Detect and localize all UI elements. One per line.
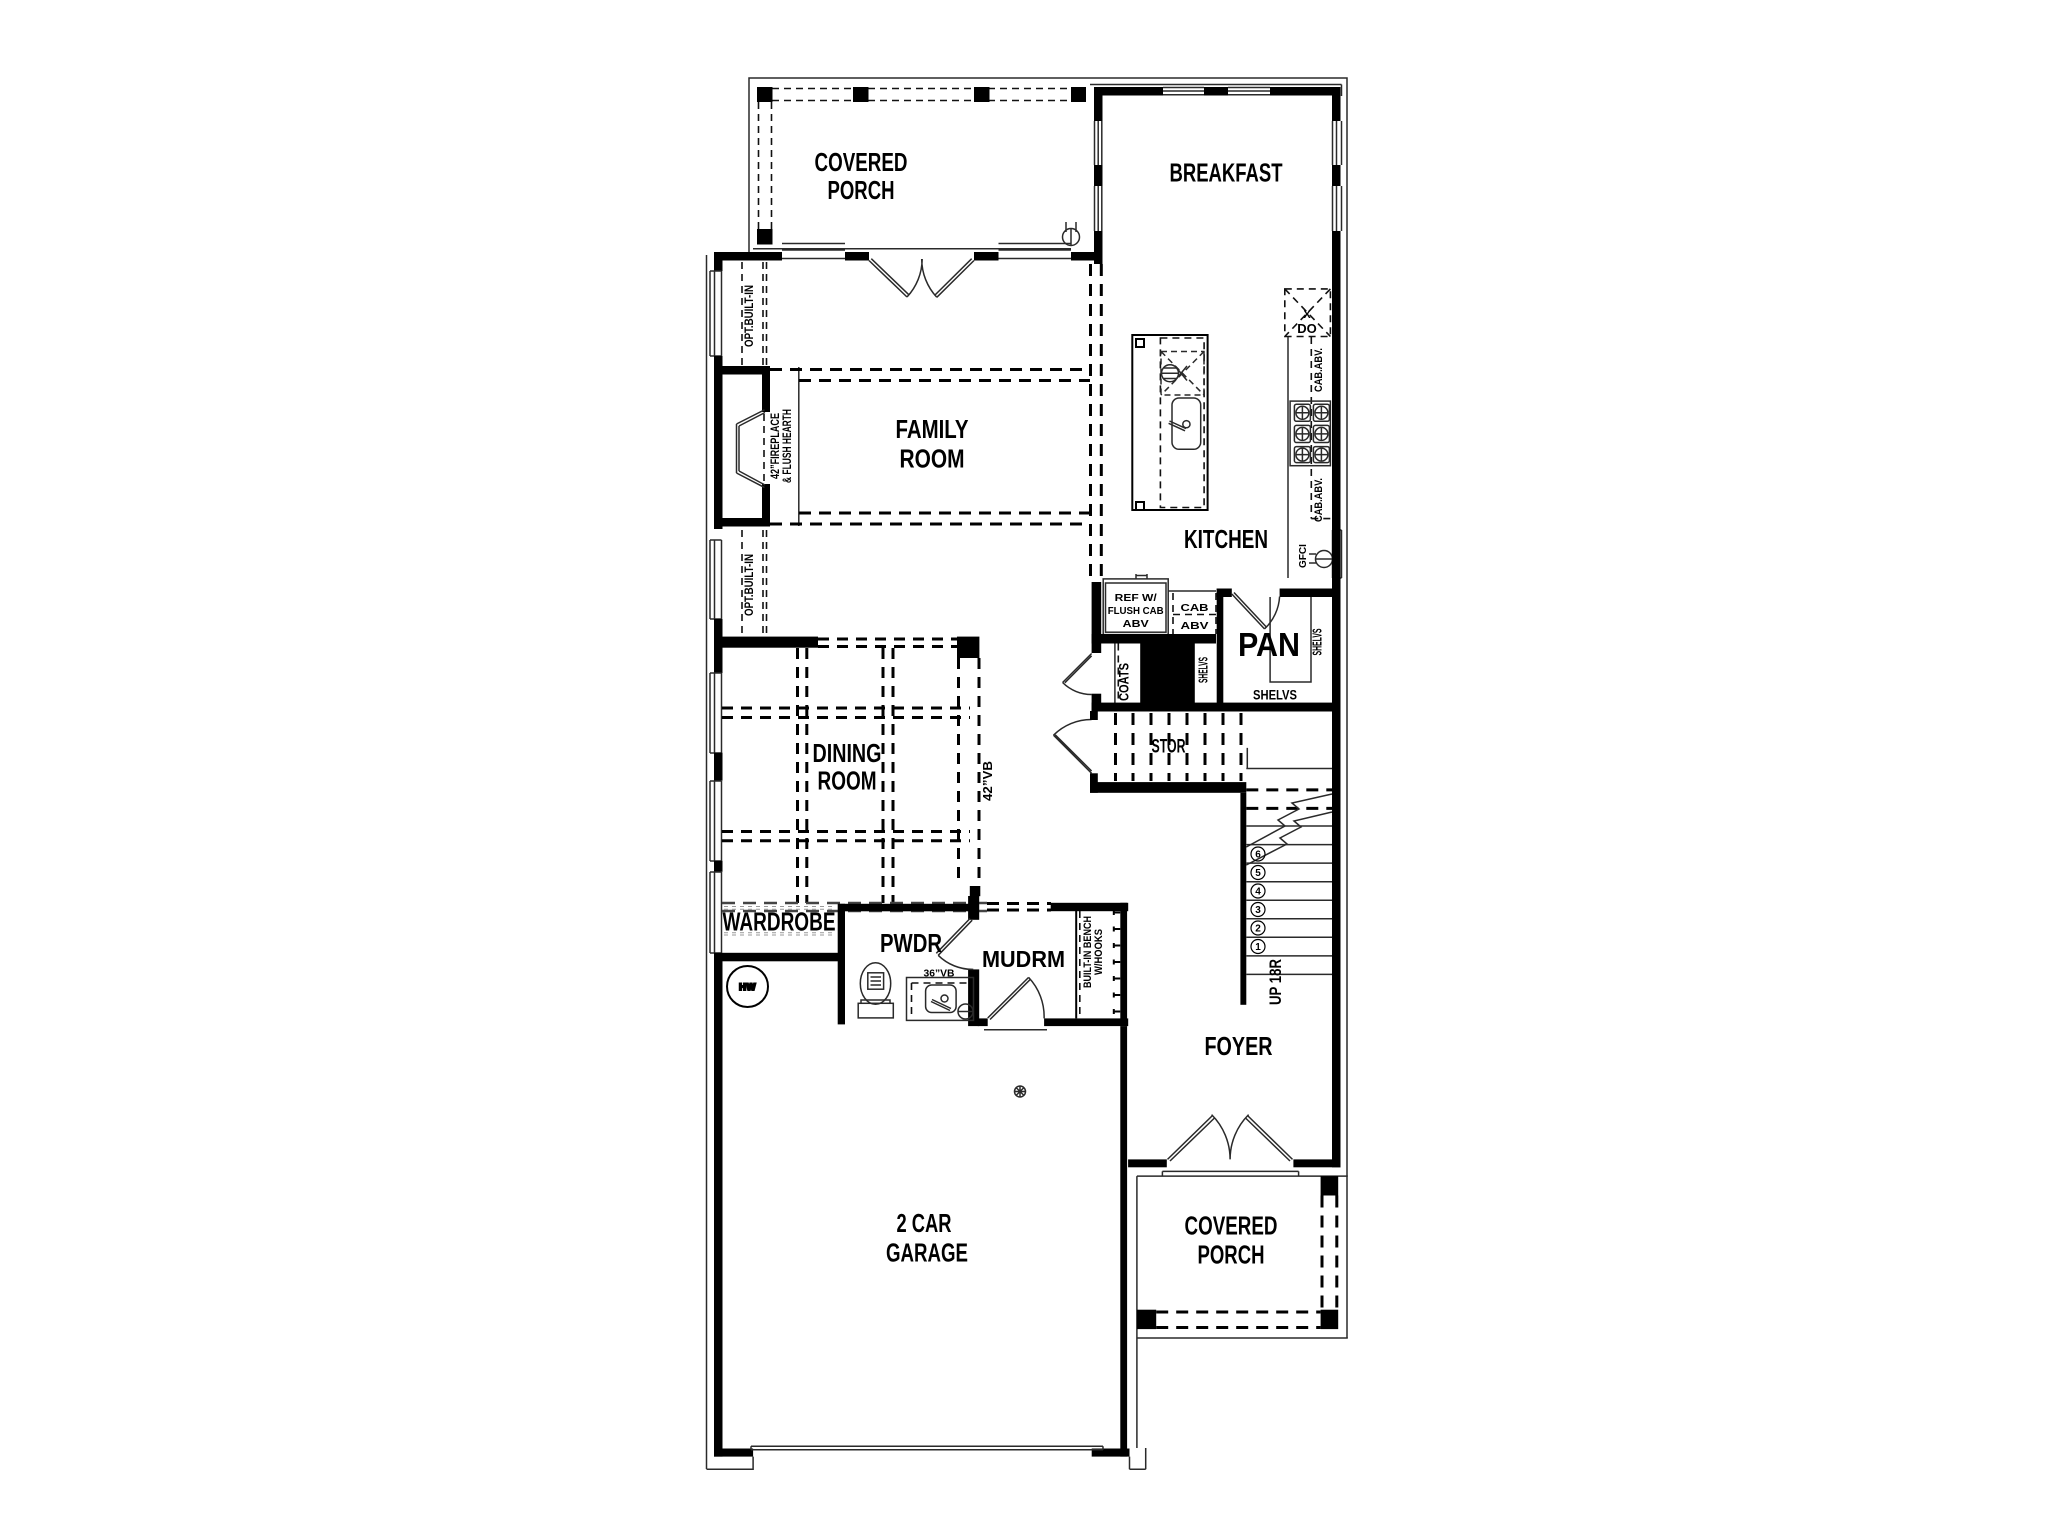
svg-text:3: 3 bbox=[1255, 905, 1261, 916]
svg-text:BREAKFAST: BREAKFAST bbox=[1170, 158, 1283, 188]
svg-text:ABV: ABV bbox=[1181, 620, 1209, 632]
svg-text:MUDRM: MUDRM bbox=[982, 946, 1065, 972]
svg-text:GARAGE: GARAGE bbox=[886, 1238, 968, 1268]
svg-text:2 CAR: 2 CAR bbox=[897, 1208, 952, 1238]
svg-text:DO: DO bbox=[1297, 321, 1317, 336]
svg-text:CAB: CAB bbox=[1181, 602, 1210, 614]
svg-text:GFCI: GFCI bbox=[1298, 544, 1309, 568]
svg-text:CAB.ABV.: CAB.ABV. bbox=[1313, 348, 1325, 392]
svg-text:SHELVS: SHELVS bbox=[1197, 657, 1211, 683]
svg-text:PWDR: PWDR bbox=[880, 928, 942, 958]
svg-text:OPT.BUILT-IN: OPT.BUILT-IN bbox=[744, 554, 756, 616]
svg-text:2: 2 bbox=[1255, 924, 1261, 935]
svg-text:6: 6 bbox=[1255, 850, 1261, 861]
svg-text:X: X bbox=[1303, 309, 1311, 321]
svg-text:UP 18R: UP 18R bbox=[1266, 959, 1285, 1005]
svg-text:PORCH: PORCH bbox=[1198, 1240, 1265, 1270]
svg-text:OPT.BUILT-IN: OPT.BUILT-IN bbox=[744, 285, 756, 347]
svg-text:FAMILY: FAMILY bbox=[896, 414, 969, 444]
svg-text:SHELVS: SHELVS bbox=[1311, 629, 1325, 656]
svg-text:& FLUSH HEARTH: & FLUSH HEARTH bbox=[780, 409, 794, 483]
svg-text:PORCH: PORCH bbox=[828, 175, 895, 205]
svg-text:ABV: ABV bbox=[1123, 618, 1149, 630]
svg-text:DINING: DINING bbox=[813, 738, 882, 768]
svg-text:COVERED: COVERED bbox=[1185, 1211, 1278, 1241]
svg-text:42”VB: 42”VB bbox=[980, 761, 995, 801]
svg-text:ROOM: ROOM bbox=[900, 444, 965, 474]
svg-text:CAB.ABV.: CAB.ABV. bbox=[1313, 478, 1325, 522]
svg-text:W/HOOKS: W/HOOKS bbox=[1093, 929, 1105, 975]
svg-text:FOYER: FOYER bbox=[1205, 1031, 1273, 1061]
svg-text:SHELVS: SHELVS bbox=[1253, 688, 1297, 703]
svg-text:KITCHEN: KITCHEN bbox=[1184, 524, 1268, 554]
svg-text:WARDROBE: WARDROBE bbox=[723, 907, 836, 937]
svg-text:REF W/: REF W/ bbox=[1115, 592, 1157, 604]
svg-text:STOR: STOR bbox=[1152, 737, 1186, 758]
svg-text:4: 4 bbox=[1255, 887, 1261, 898]
svg-text:1: 1 bbox=[1255, 942, 1261, 953]
svg-text:FLUSH CAB: FLUSH CAB bbox=[1108, 605, 1164, 617]
svg-text:COVERED: COVERED bbox=[815, 147, 908, 177]
svg-text:COATS: COATS bbox=[1117, 663, 1132, 701]
svg-text:5: 5 bbox=[1255, 868, 1261, 879]
svg-text:PAN: PAN bbox=[1238, 626, 1300, 663]
svg-text:HW: HW bbox=[739, 982, 756, 993]
svg-text:36”VB: 36”VB bbox=[924, 968, 955, 980]
svg-text:ROOM: ROOM bbox=[818, 766, 877, 796]
